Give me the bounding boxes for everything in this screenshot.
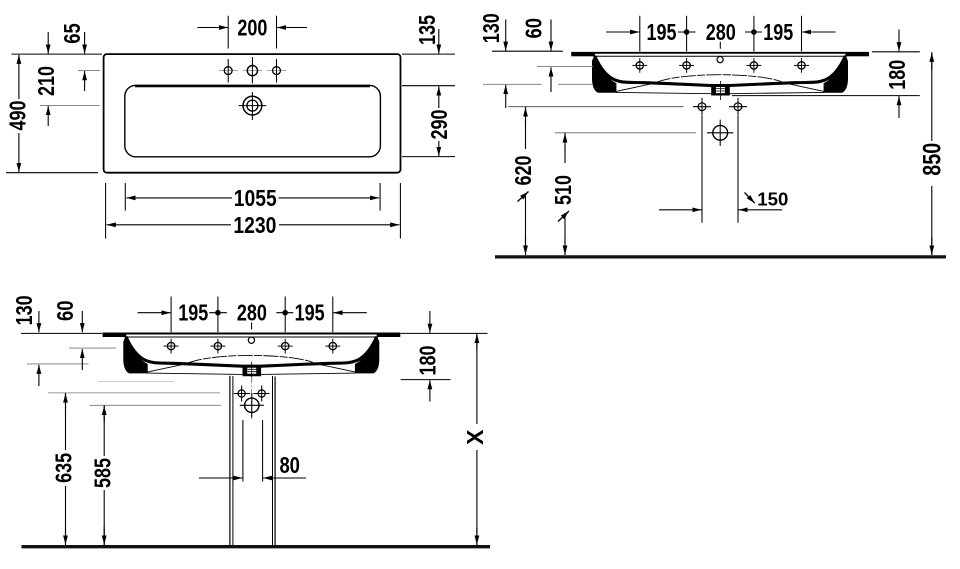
svg-text:80: 80 [279,452,300,478]
svg-text:620: 620 [510,156,536,186]
svg-text:195: 195 [295,300,325,326]
svg-text:130: 130 [11,295,37,325]
svg-text:195: 195 [647,19,677,45]
svg-text:280: 280 [237,300,267,326]
svg-text:1055: 1055 [234,185,277,211]
svg-text:135: 135 [414,15,440,45]
svg-text:585: 585 [90,458,116,488]
svg-text:490: 490 [5,101,31,131]
svg-text:130: 130 [478,13,504,43]
svg-text:60: 60 [521,18,547,39]
svg-text:60: 60 [52,300,78,321]
svg-text:195: 195 [178,300,208,326]
svg-text:200: 200 [237,15,267,41]
svg-text:1230: 1230 [233,212,276,238]
svg-text:65: 65 [59,23,85,44]
svg-text:210: 210 [33,66,59,96]
svg-text:635: 635 [51,453,77,483]
svg-text:195: 195 [763,19,793,45]
svg-text:150: 150 [757,190,788,210]
svg-text:850: 850 [918,143,946,176]
svg-text:180: 180 [414,346,440,376]
svg-text:280: 280 [706,19,736,45]
svg-text:510: 510 [550,175,576,205]
svg-text:290: 290 [426,110,452,140]
svg-text:X: X [462,429,488,445]
svg-text:180: 180 [884,60,910,90]
